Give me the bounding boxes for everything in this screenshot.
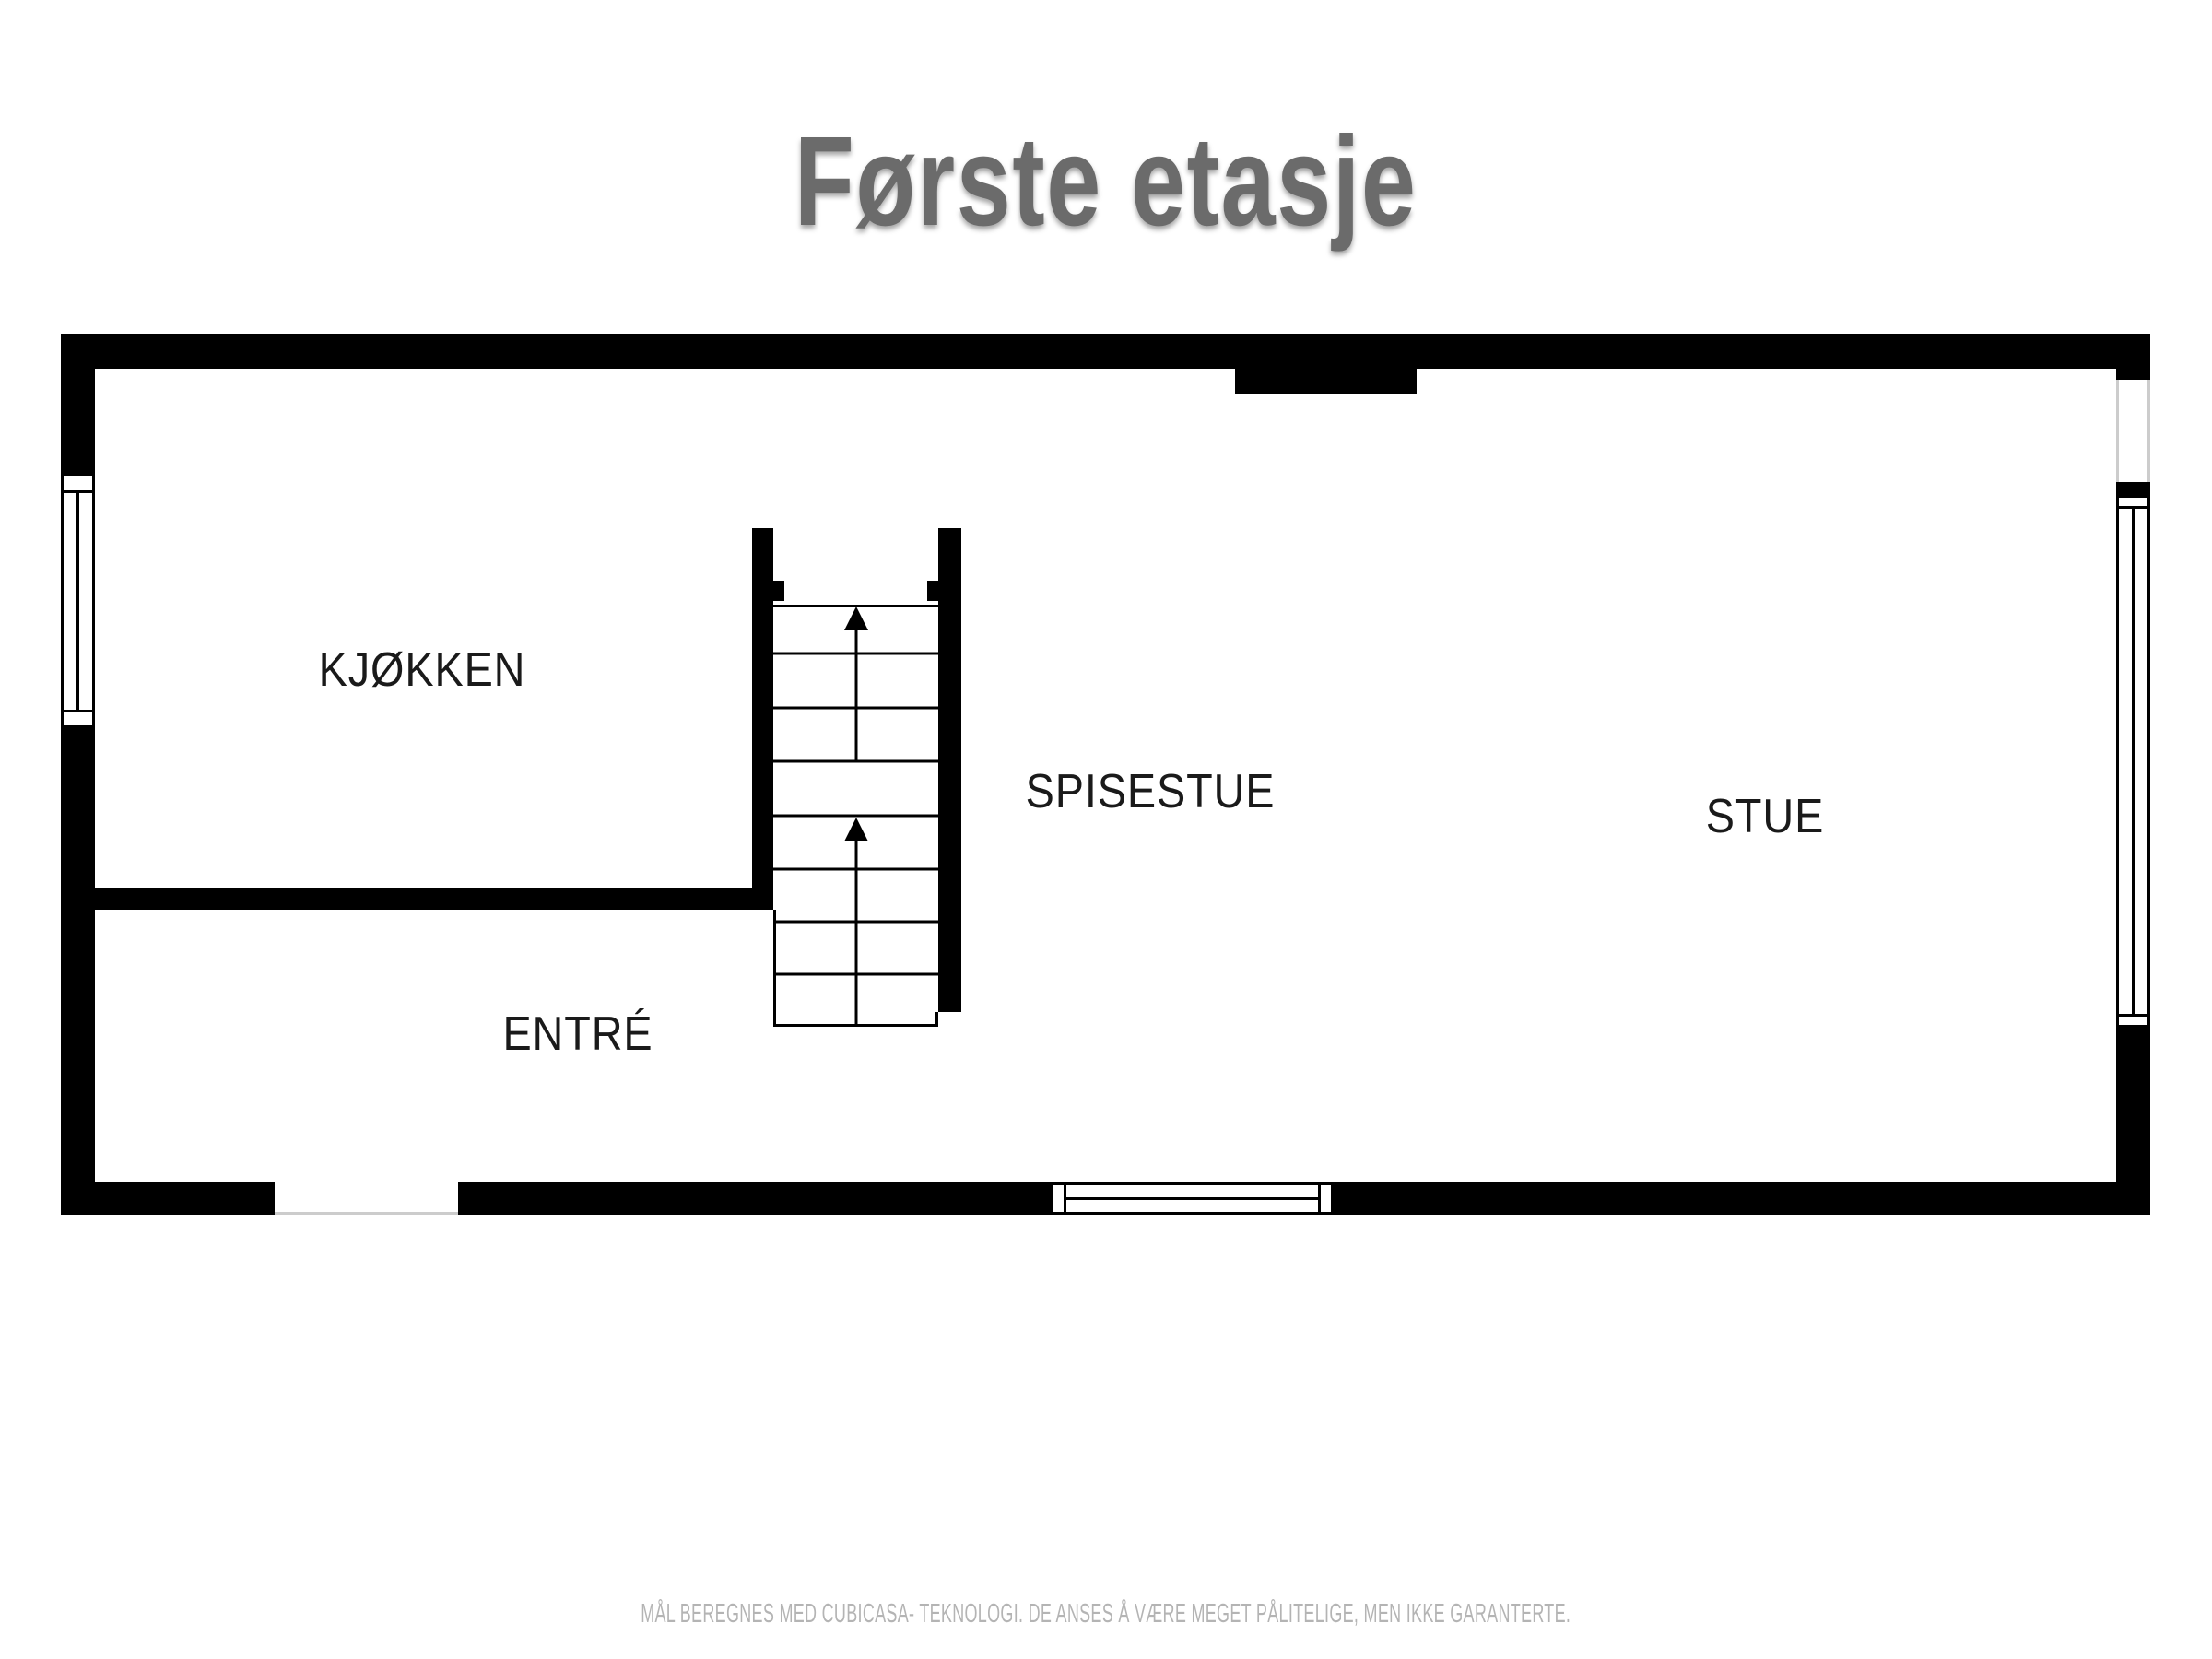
wall-bottom-left bbox=[61, 1182, 275, 1215]
floor-plan-page: Første etasje bbox=[0, 0, 2212, 1659]
wall-top bbox=[61, 334, 2150, 369]
stair-jamb-left bbox=[773, 581, 784, 601]
room-label-stue: STUE bbox=[1700, 793, 1831, 841]
page-title-text: Første etasje bbox=[794, 118, 1418, 245]
wall-bottom-right bbox=[1334, 1182, 2150, 1215]
right-opening-inner-line bbox=[2116, 380, 2119, 482]
staircase bbox=[773, 605, 938, 1027]
stair-jamb-right bbox=[927, 581, 938, 601]
room-label-kjokken: KJØKKEN bbox=[307, 646, 537, 694]
wall-left-lower bbox=[61, 728, 95, 1215]
stairs-up-arrow-lower bbox=[844, 818, 868, 841]
page-title: Første etasje bbox=[0, 118, 2212, 245]
room-label-entre: ENTRÉ bbox=[494, 1010, 661, 1058]
window-bottom bbox=[1051, 1182, 1334, 1215]
window-right bbox=[2116, 495, 2150, 1028]
stair-wall-right bbox=[938, 528, 961, 1012]
window-left bbox=[61, 473, 95, 728]
wall-right-corner bbox=[2116, 369, 2150, 380]
wall-top-chimney bbox=[1235, 369, 1417, 394]
disclaimer-text: MÅL BEREGNES MED CUBICASA- TEKNOLOGI. DE… bbox=[641, 1601, 1571, 1628]
wall-right-cap bbox=[2116, 482, 2150, 495]
wall-kitchen-south bbox=[61, 888, 773, 910]
stairs-up-arrow-upper bbox=[844, 606, 868, 630]
stair-wall-left bbox=[752, 528, 773, 910]
room-label-spisestue: SPISESTUE bbox=[1012, 768, 1289, 816]
right-opening-outer-line bbox=[2147, 380, 2150, 482]
wall-bottom-middle bbox=[458, 1182, 1051, 1215]
footer: MÅL BEREGNES MED CUBICASA- TEKNOLOGI. DE… bbox=[0, 1601, 2212, 1628]
entry-door-opening-line bbox=[275, 1212, 458, 1215]
wall-left-upper bbox=[61, 369, 95, 473]
